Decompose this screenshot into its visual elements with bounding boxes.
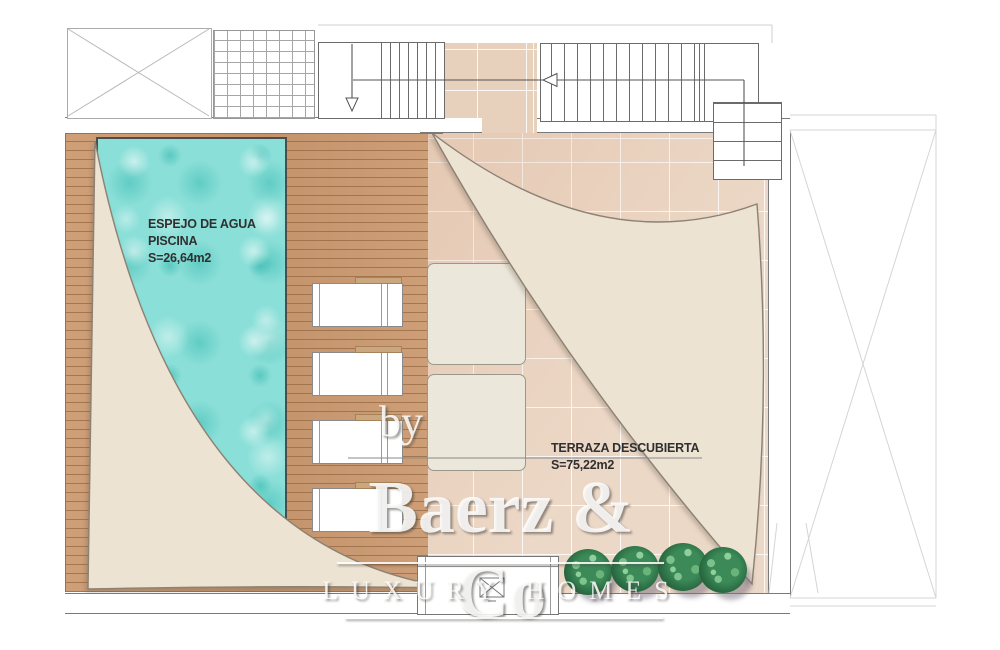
floor-plan-canvas: ESPEJO DE AGUA PISCINA S=26,64m2 TERRAZA… — [0, 0, 1000, 650]
stair-walk-line — [352, 44, 744, 166]
roof-void-x-icon — [68, 29, 209, 116]
watermark-rule-top — [337, 562, 664, 564]
side-void-outline — [769, 115, 936, 606]
pool-label-line3: S=26,64m2 — [148, 250, 256, 267]
pool-label-line2: PISCINA — [148, 233, 256, 250]
stair-arrow-down-icon — [346, 98, 358, 111]
watermark-by: by — [366, 396, 436, 447]
terrace-label-line1: TERRAZA DESCUBIERTA — [551, 440, 699, 457]
pool-area-label: ESPEJO DE AGUA PISCINA S=26,64m2 — [148, 216, 256, 267]
watermark-brand: Baerz & Co — [318, 466, 684, 636]
stair-arrow-left-icon — [543, 74, 557, 87]
watermark-rule-bottom — [345, 617, 663, 619]
pool-label-line1: ESPEJO DE AGUA — [148, 216, 256, 233]
upper-floor-outline — [318, 25, 772, 43]
watermark-tagline: LUXURY HOMES — [316, 576, 688, 606]
